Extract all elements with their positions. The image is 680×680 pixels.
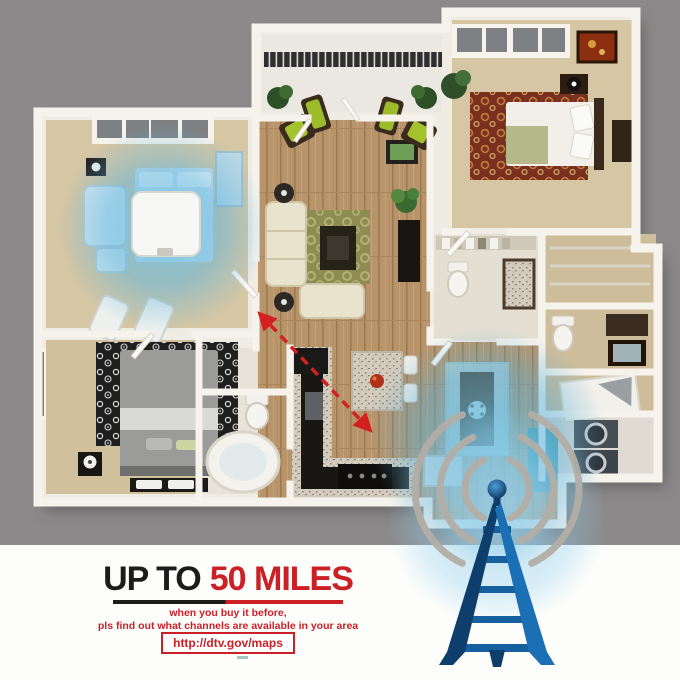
dtv-maps-url[interactable]: http://dtv.gov/maps <box>161 632 295 654</box>
cta-wrap: http://dtv.gov/maps <box>0 632 456 654</box>
watermark-dash <box>237 656 248 659</box>
headline-underline <box>113 600 343 604</box>
subtext-line1: when you buy it before, <box>0 607 456 619</box>
headline: UP TO50 MILES <box>0 560 456 599</box>
headline-prefix: UP TO <box>103 560 201 598</box>
flat-antenna-panel <box>132 192 200 256</box>
headline-highlight: 50 MILES <box>210 560 353 598</box>
tv-antenna-advertisement: UP TO50 MILES when you buy it before, pl… <box>0 0 680 680</box>
subtext-line2: pls find out what channels are available… <box>0 620 456 632</box>
